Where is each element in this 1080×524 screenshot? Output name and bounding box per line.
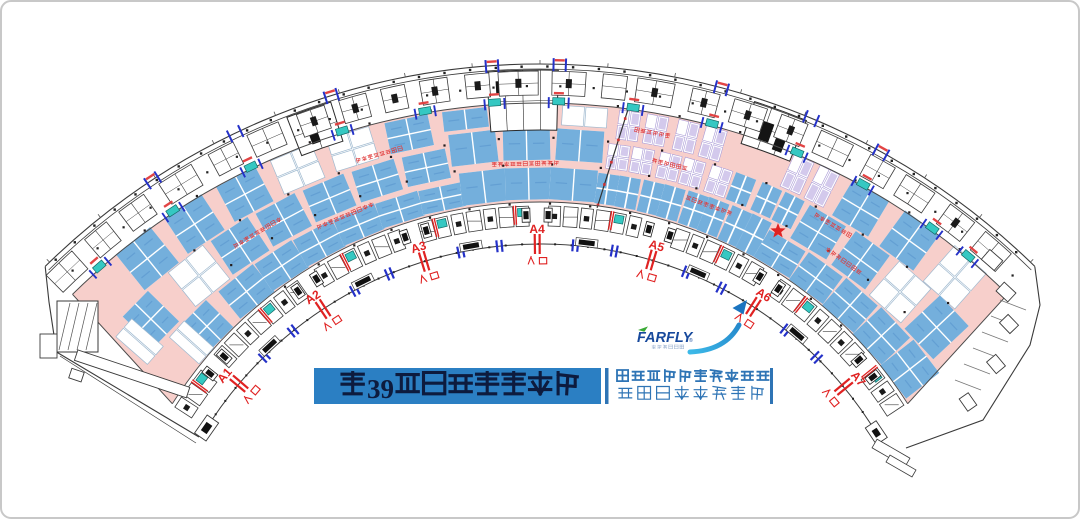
svg-text:39: 39 xyxy=(367,374,394,404)
svg-text:FARFLY: FARFLY xyxy=(637,330,694,346)
svg-text:A4: A4 xyxy=(529,222,545,236)
svg-text:®: ® xyxy=(689,337,693,344)
